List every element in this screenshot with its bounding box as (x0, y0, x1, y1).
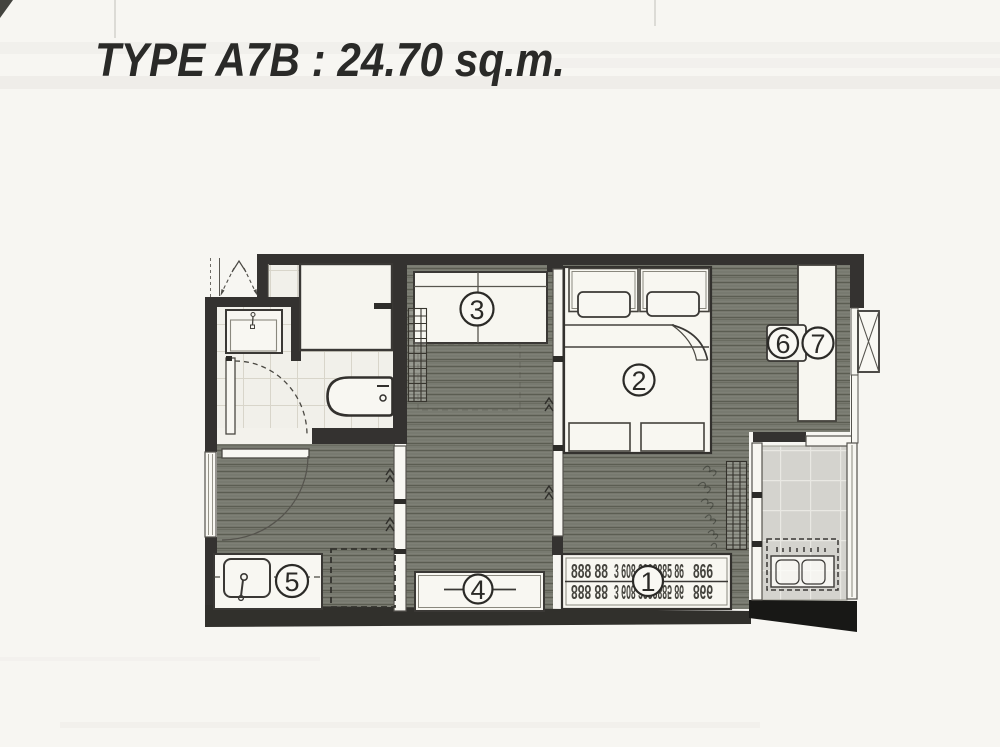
svg-text:7: 7 (810, 329, 825, 359)
svg-text:888 88: 888 88 (571, 561, 608, 583)
svg-text:3: 3 (469, 295, 484, 325)
svg-text:866: 866 (693, 580, 713, 602)
svg-text:TYPE A7B : 24.70 sq.m.: TYPE A7B : 24.70 sq.m. (95, 33, 565, 86)
svg-text:888 88: 888 88 (571, 580, 608, 602)
svg-text:866: 866 (693, 561, 713, 583)
svg-text:6: 6 (775, 329, 790, 359)
svg-text:4: 4 (470, 575, 485, 605)
svg-text:2: 2 (631, 366, 646, 396)
svg-text:5: 5 (284, 567, 299, 597)
svg-text:1: 1 (640, 567, 655, 597)
